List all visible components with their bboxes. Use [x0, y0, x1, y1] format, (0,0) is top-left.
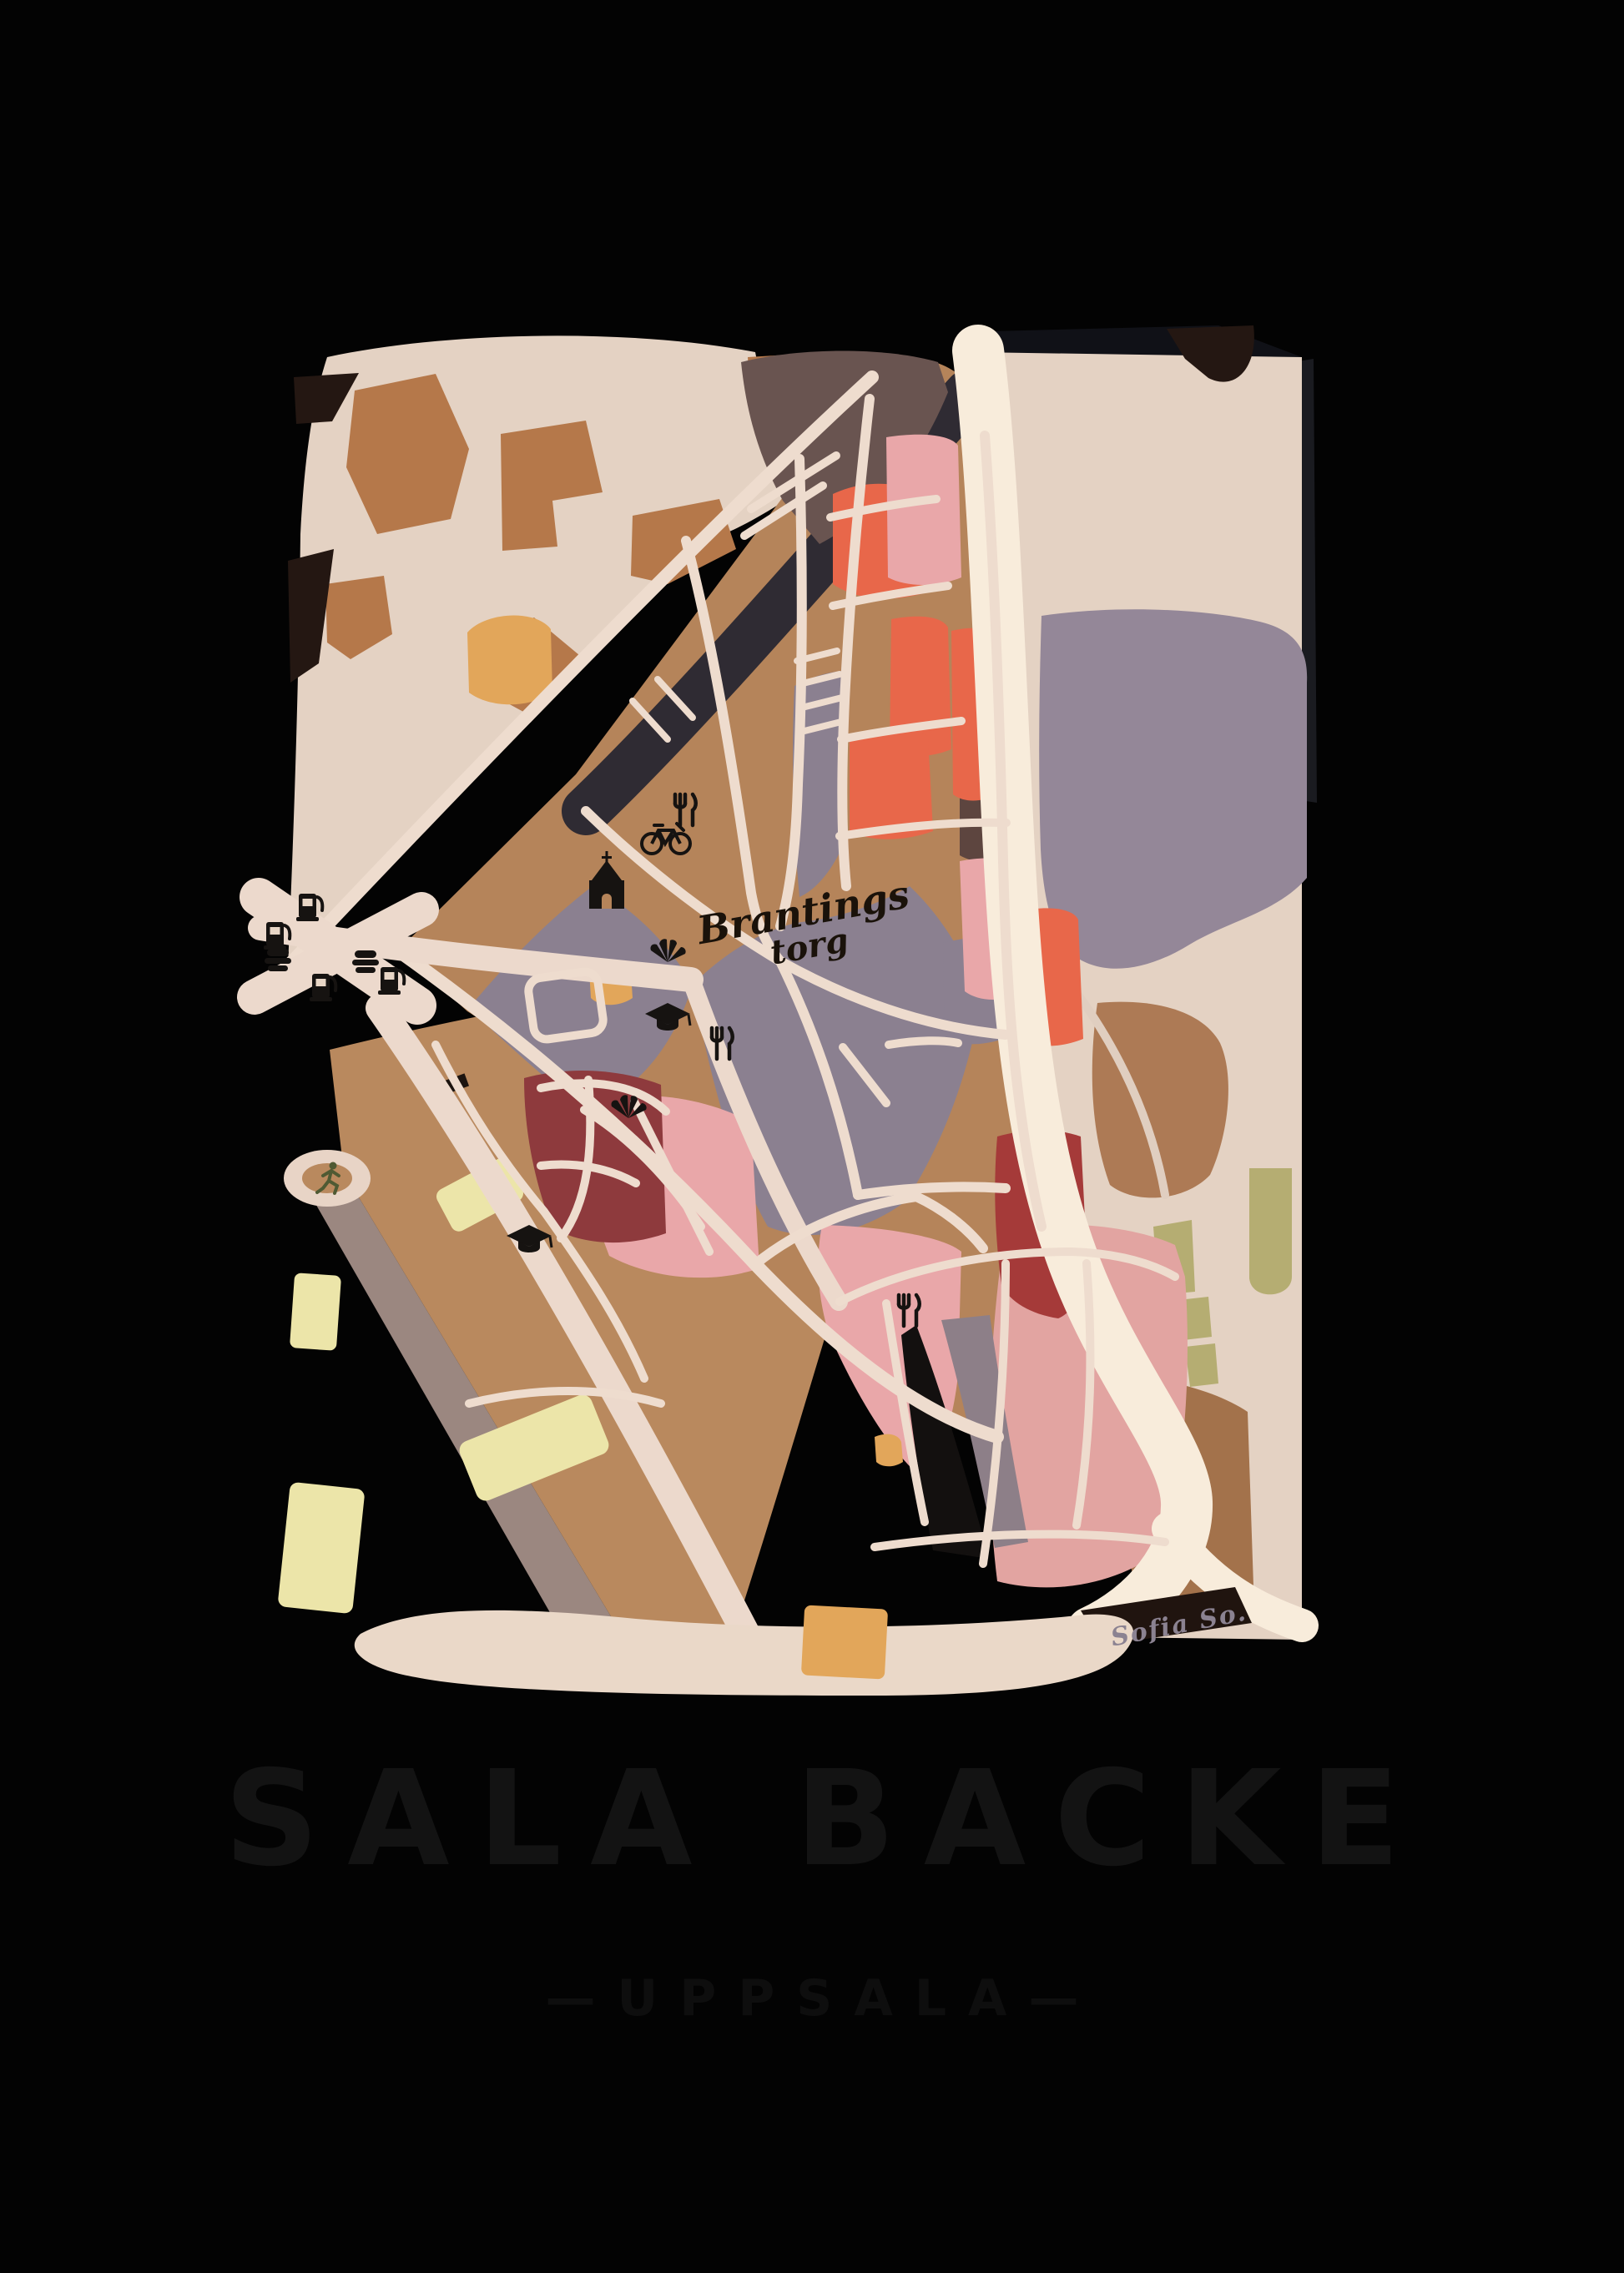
- fast-food-icon: [265, 949, 291, 971]
- fuel-station-icon: [310, 974, 335, 1001]
- fast-food-icon: [352, 950, 379, 973]
- poster-subtitle: —UPPSALA—: [0, 1969, 1624, 2028]
- poster-canvas: Brantings torg Sofia So. SALA BACKE —UPP…: [0, 0, 1624, 2273]
- map-artwork: [0, 0, 1624, 2273]
- poster-title: SALA BACKE: [0, 1742, 1624, 1896]
